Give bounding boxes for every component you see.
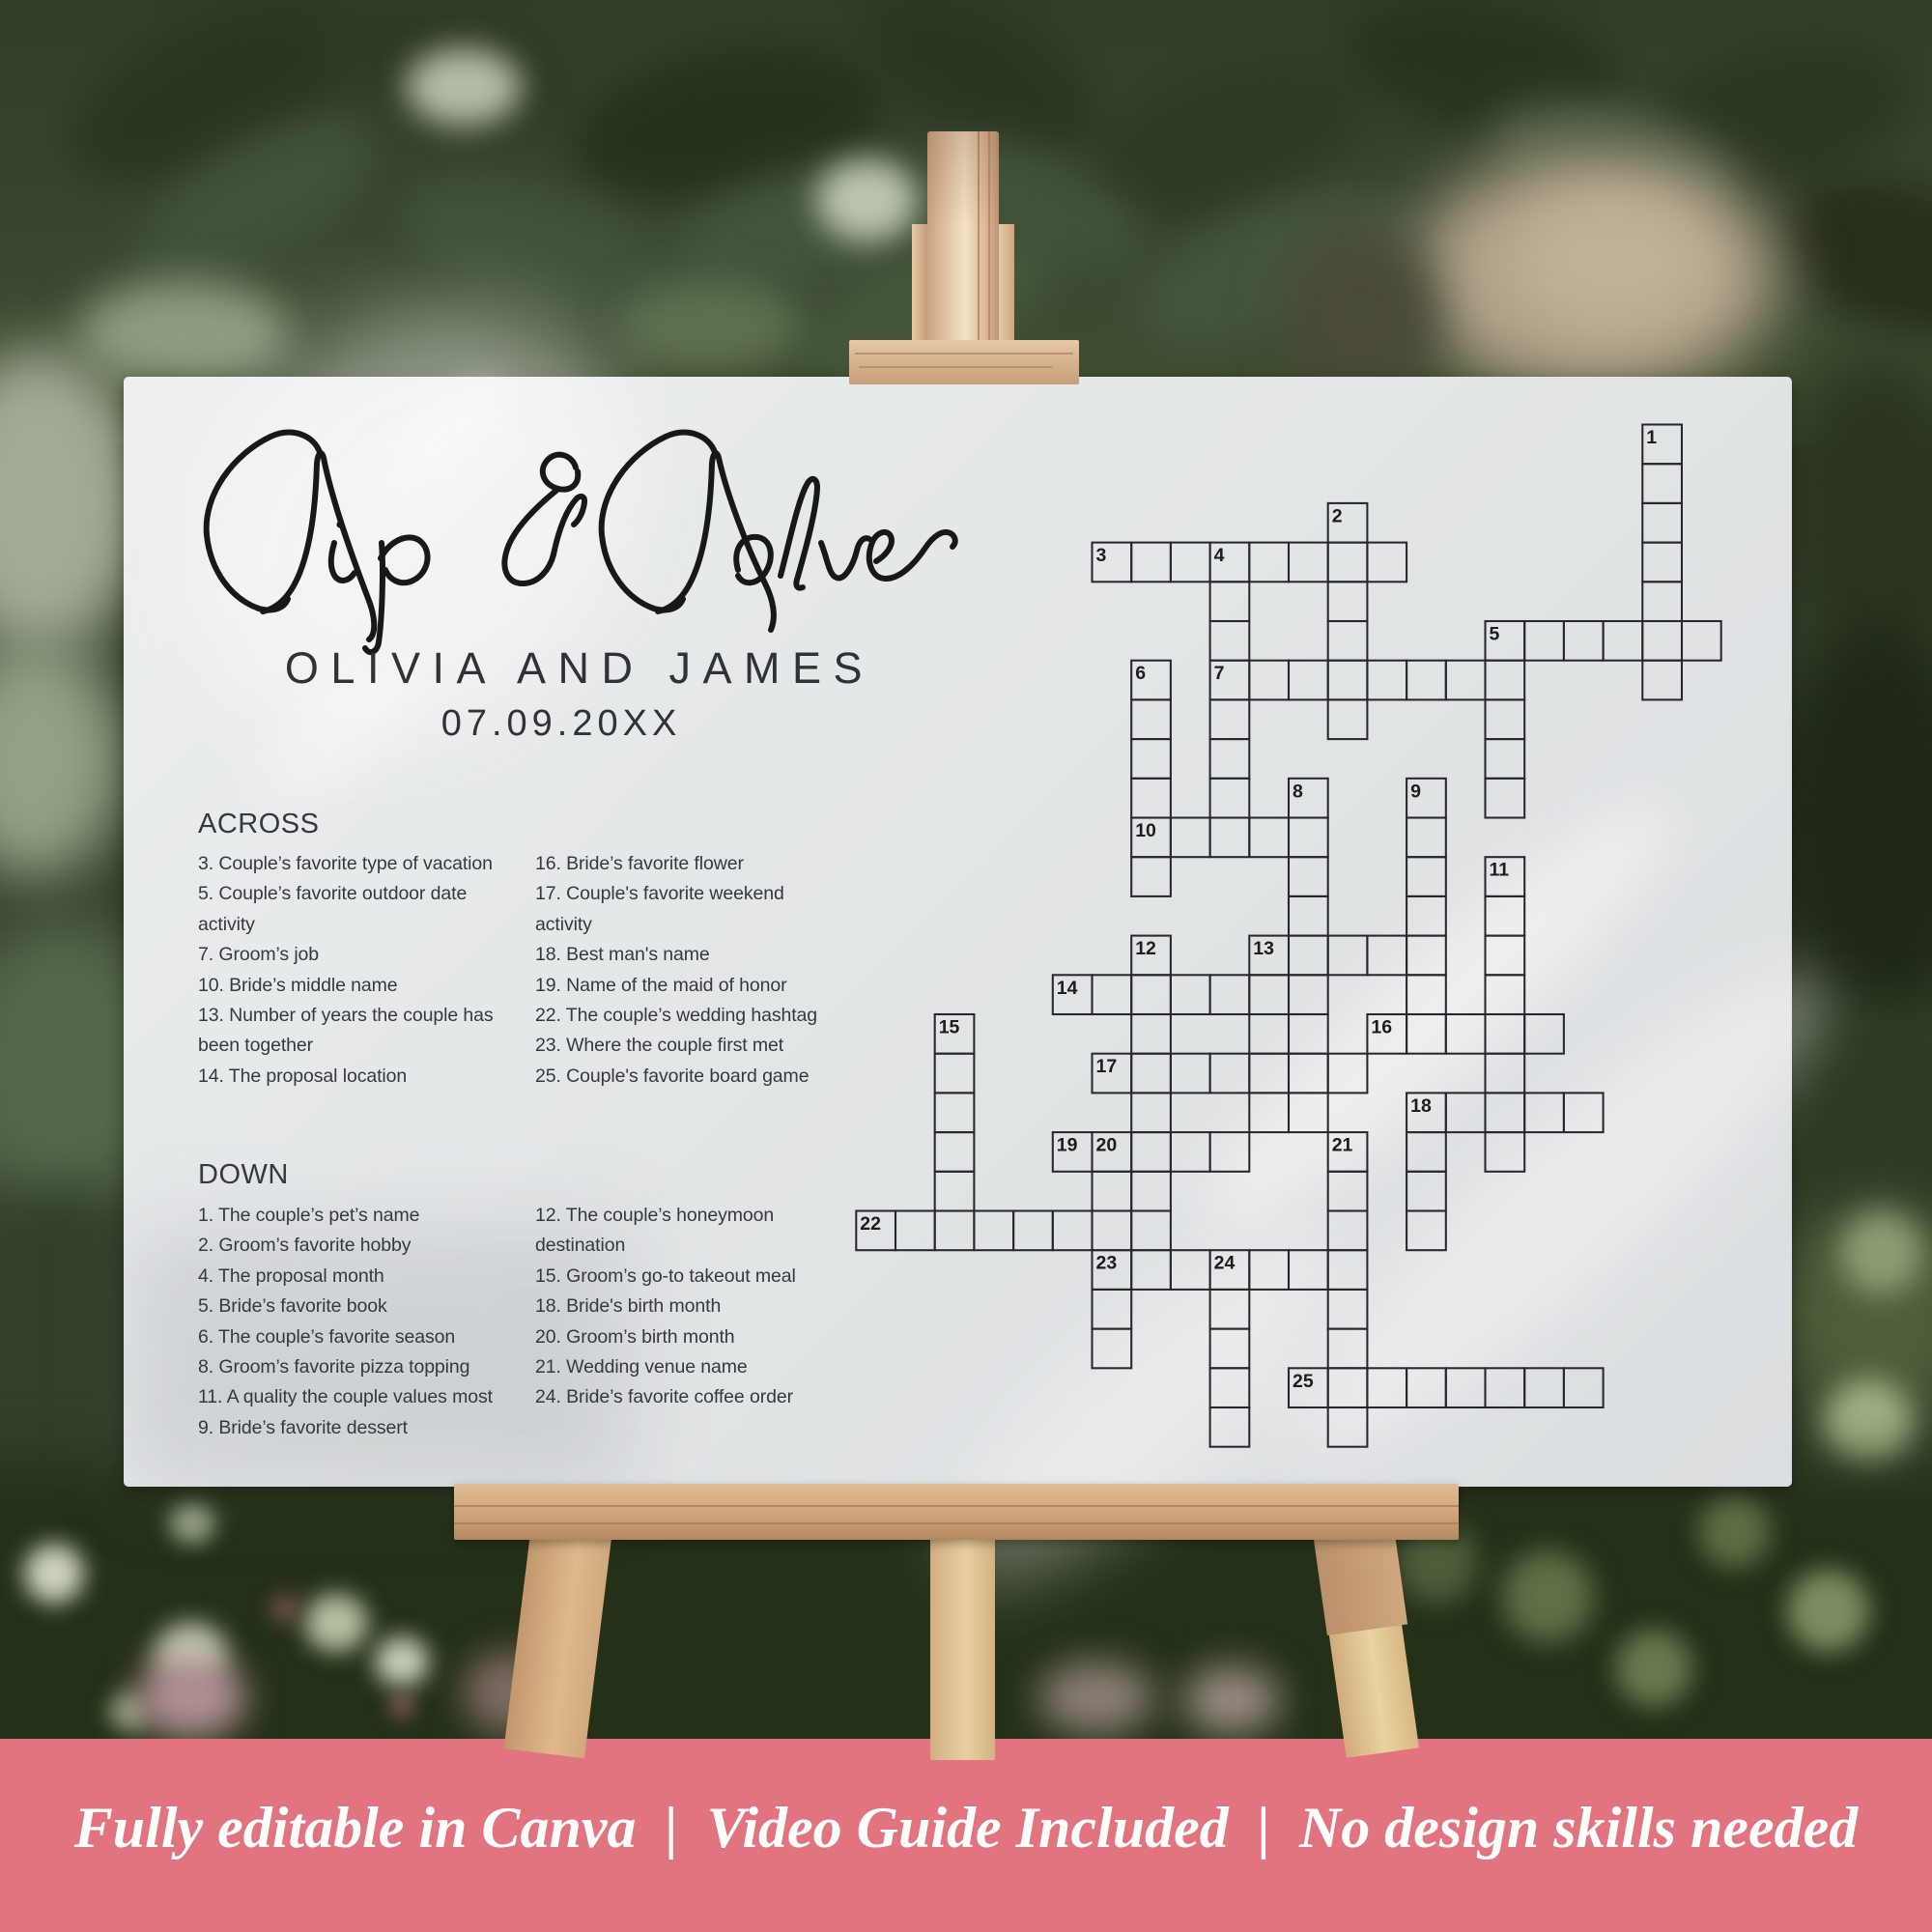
- svg-text:20: 20: [1096, 1135, 1118, 1156]
- svg-text:15: 15: [939, 1017, 960, 1038]
- svg-text:21: 21: [1332, 1135, 1353, 1156]
- svg-text:8: 8: [1293, 781, 1303, 802]
- svg-text:10: 10: [1135, 820, 1156, 841]
- svg-text:24: 24: [1214, 1253, 1236, 1274]
- svg-text:23: 23: [1096, 1253, 1118, 1274]
- svg-text:14: 14: [1057, 978, 1078, 999]
- svg-text:1: 1: [1646, 427, 1657, 448]
- svg-text:6: 6: [1135, 663, 1146, 684]
- svg-text:5: 5: [1490, 624, 1500, 645]
- svg-text:17: 17: [1096, 1056, 1118, 1077]
- svg-text:18: 18: [1410, 1095, 1432, 1117]
- svg-text:2: 2: [1332, 505, 1343, 526]
- svg-text:19: 19: [1057, 1135, 1078, 1156]
- svg-text:7: 7: [1214, 663, 1225, 684]
- svg-text:22: 22: [860, 1213, 881, 1235]
- svg-text:11: 11: [1490, 860, 1510, 881]
- svg-text:25: 25: [1293, 1371, 1314, 1392]
- svg-text:3: 3: [1096, 545, 1107, 566]
- svg-text:4: 4: [1214, 545, 1225, 566]
- svg-text:13: 13: [1253, 938, 1274, 959]
- svg-text:12: 12: [1135, 938, 1156, 959]
- svg-text:16: 16: [1371, 1017, 1392, 1038]
- svg-text:9: 9: [1410, 781, 1421, 802]
